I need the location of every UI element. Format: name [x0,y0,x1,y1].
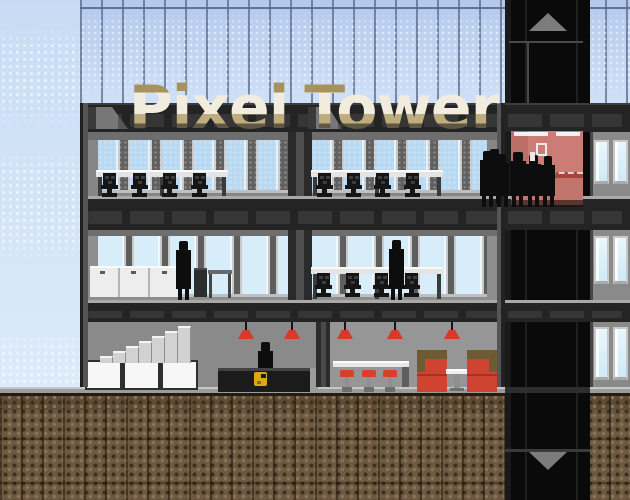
pendant-lamp [337,322,353,340]
wall-frame [536,143,547,156]
copier [194,268,207,297]
pendant-lamp [387,322,403,340]
crowd-person [541,165,555,196]
game-logo: Pixel Tower [104,78,524,158]
elevator-shaft [505,0,590,500]
office-chair [344,273,361,297]
office-chair [161,173,178,197]
bar-counter [333,361,409,367]
stair-step [126,346,139,363]
shaft-guide-rail [576,0,578,500]
crowd-person [480,160,495,196]
booth-seat [417,350,447,392]
elevator-cable [509,41,583,43]
section-divider [288,230,312,300]
elevator-cable [527,43,529,103]
pendant-lamp [284,322,300,340]
office-chair [315,273,332,297]
building-left-edge [80,103,88,387]
stair-step [139,341,152,363]
pendant-lamp [444,322,460,340]
office-chair [345,173,362,197]
crowd-person [526,164,541,196]
booth-seat [467,350,497,392]
bar-counter-post [402,367,409,387]
office-chair [403,273,420,297]
right-wing-window [613,236,628,284]
crowd-person [510,161,526,196]
right-wing-window [613,327,628,380]
game-viewport: Pixel Tower [0,0,630,500]
section-divider [316,322,330,387]
right-wing-window [594,140,609,184]
stair-step [113,351,126,363]
right-wing-window [613,140,628,184]
desk [311,267,443,274]
stair-step [178,326,191,363]
counter-emblem-icon [254,372,267,386]
right-wing-window [594,327,609,380]
logo-word-tower: Tower [304,78,499,138]
storefront-windows [85,360,198,390]
stair-step [152,336,165,363]
down-arrow-icon[interactable] [529,452,567,470]
held-paper [530,152,535,161]
office-chair [404,173,421,197]
right-wing-window [594,236,609,284]
ceiling-trim [556,132,580,136]
booth-table-base [450,388,464,391]
up-arrow-icon[interactable] [529,13,567,31]
logo-word-pixel: Pixel [129,78,289,138]
cabinet-row [90,266,182,297]
office-chair [373,273,390,297]
stair-step [100,356,113,363]
lobby-floor-line [511,200,583,207]
shaft-edge [505,0,511,500]
bartender-silhouette [258,351,273,368]
crowd-person [495,163,509,196]
office-chair [131,173,148,197]
stair-step [165,331,178,363]
office-chair [191,173,208,197]
person-silhouette [176,250,191,289]
office-chair [374,173,391,197]
office-chair [316,173,333,197]
office-chair [101,173,118,197]
side-table [208,270,232,298]
floor-slab [80,300,630,322]
shaft-street-line [505,387,590,393]
person-silhouette [389,249,404,289]
pendant-lamp [238,322,254,340]
booth-table-leg [454,374,460,388]
